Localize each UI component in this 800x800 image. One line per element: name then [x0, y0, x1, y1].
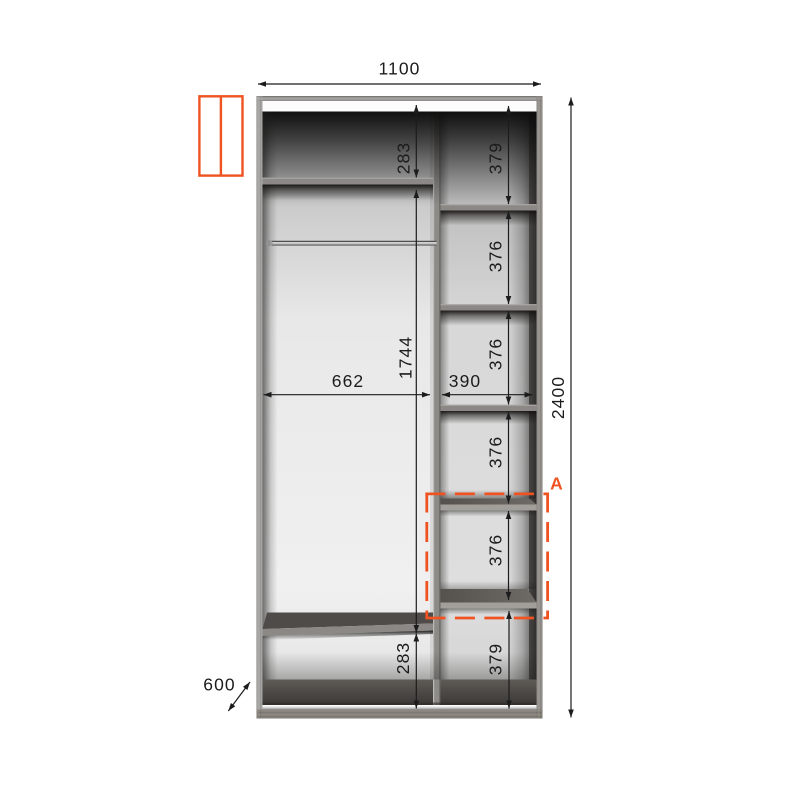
svg-text:390: 390 [449, 371, 482, 391]
svg-text:600: 600 [203, 675, 236, 695]
svg-text:283: 283 [393, 642, 413, 675]
svg-text:A: A [550, 474, 563, 494]
svg-text:283: 283 [394, 142, 414, 175]
svg-text:1100: 1100 [378, 59, 420, 79]
svg-text:376: 376 [486, 534, 506, 567]
svg-text:1744: 1744 [396, 336, 416, 379]
svg-text:2400: 2400 [548, 376, 568, 419]
svg-text:379: 379 [486, 142, 506, 175]
svg-text:376: 376 [486, 338, 506, 371]
svg-text:376: 376 [486, 436, 506, 469]
svg-text:379: 379 [486, 643, 506, 676]
svg-text:376: 376 [486, 240, 506, 273]
svg-text:662: 662 [332, 371, 365, 391]
